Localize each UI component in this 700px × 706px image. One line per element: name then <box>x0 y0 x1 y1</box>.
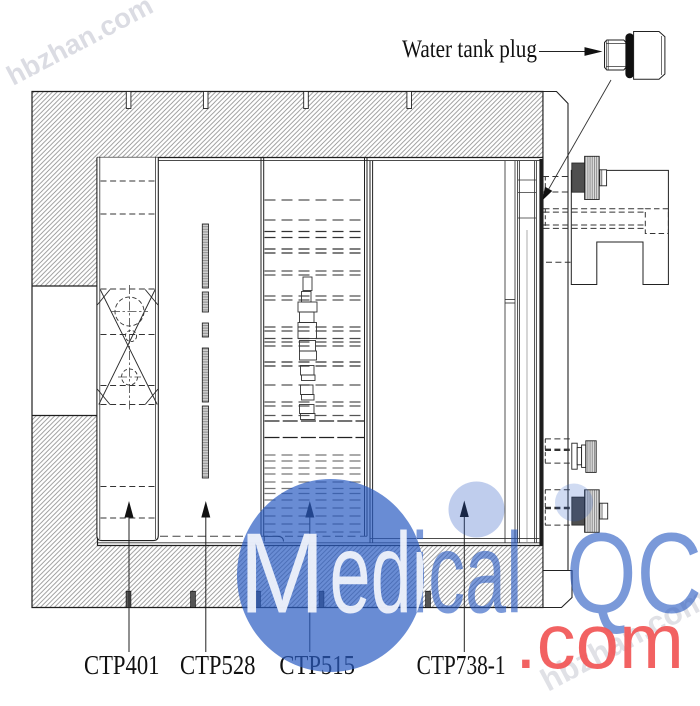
svg-text:CTP738-1: CTP738-1 <box>417 649 506 680</box>
svg-text:M: M <box>239 511 325 638</box>
svg-text:CTP528: CTP528 <box>180 649 256 680</box>
svg-text:CTP401: CTP401 <box>84 649 160 680</box>
svg-text:.com: .com <box>515 597 684 685</box>
svg-text:Water tank plug: Water tank plug <box>402 36 537 63</box>
